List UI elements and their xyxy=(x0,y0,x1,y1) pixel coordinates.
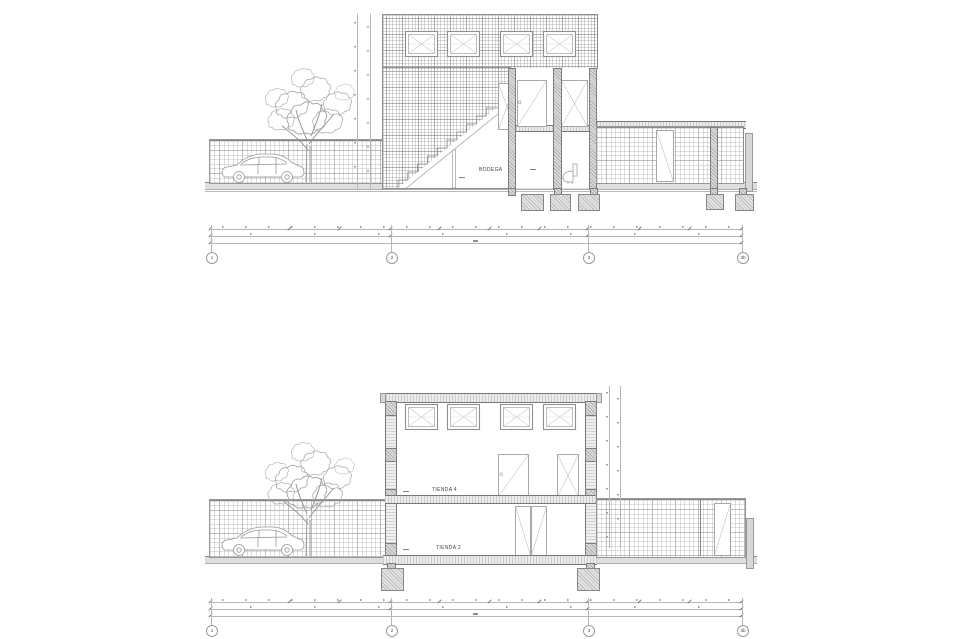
section-b: TIENDA 4 TIENDA 2 xyxy=(0,280,960,639)
level-marker-a1 xyxy=(459,174,465,178)
grid-leader-b1 xyxy=(211,598,212,625)
grid-leader-a4 xyxy=(742,225,743,252)
car-a xyxy=(220,147,306,184)
footing-a2 xyxy=(550,194,571,211)
grid-bubble-label: 3 xyxy=(588,256,591,261)
grid-bubble-label: 2 xyxy=(391,256,394,261)
column-a3 xyxy=(589,68,597,190)
grid-bubble-label: 1 xyxy=(211,629,214,634)
clerestory-window-a3 xyxy=(500,31,533,57)
floor-slab-mid-b xyxy=(385,495,595,504)
clerestory-window-b2 xyxy=(447,404,480,430)
end-wall-a xyxy=(745,133,753,192)
clerestory-window-a4 xyxy=(543,31,576,57)
dim-text-specks-a2 xyxy=(250,233,720,235)
grid-bubble-a-3: 3 xyxy=(583,252,595,264)
section-a: BODEGA xyxy=(0,0,960,280)
wall-block-r2 xyxy=(585,448,597,462)
door-a-upper-1 xyxy=(517,80,547,127)
grid-bubble-a-3b: 3b xyxy=(737,252,749,264)
vert-dim-b1 xyxy=(609,386,610,548)
level-marker-a2 xyxy=(530,166,536,170)
dim-row-a3 xyxy=(211,243,742,244)
clerestory-window-b4 xyxy=(543,404,576,430)
dim-text-specks-b1 xyxy=(222,599,734,601)
door-b-lower-double xyxy=(515,506,547,556)
grid-bubble-a-1: 1 xyxy=(206,252,218,264)
grid-leader-b4 xyxy=(742,598,743,625)
clerestory-window-b3 xyxy=(500,404,533,430)
dim-row-b2 xyxy=(211,609,742,610)
footing-b2 xyxy=(577,568,600,591)
dim-text-speck-a3 xyxy=(473,240,478,242)
vert-dim-a-specks2 xyxy=(367,26,369,176)
grid-leader-a2 xyxy=(391,225,392,252)
wall-block-r1 xyxy=(585,401,597,416)
door-b-upper-2 xyxy=(557,454,579,497)
room-label-tienda-4: TIENDA 4 xyxy=(432,488,457,493)
grid-leader-b3 xyxy=(588,598,589,625)
fence-door-b xyxy=(714,503,731,556)
footing-a5 xyxy=(735,194,754,211)
end-wall-b xyxy=(746,518,754,569)
grid-leader-b2 xyxy=(391,598,392,625)
wing-door xyxy=(656,130,674,182)
dim-row-a2 xyxy=(211,236,742,237)
level-marker-b2 xyxy=(403,546,409,550)
grid-bubble-b-2: 2 xyxy=(386,625,398,637)
vert-dim-a2 xyxy=(370,14,371,190)
fence-post-b xyxy=(700,499,701,556)
vert-dim-b-specks1 xyxy=(606,392,608,540)
grid-bubble-label: 3b xyxy=(740,629,745,634)
door-a-upper-2 xyxy=(561,80,588,127)
car-b xyxy=(220,520,306,557)
dim-text-specks-a1 xyxy=(222,226,734,228)
dim-row-b3 xyxy=(211,616,742,617)
vert-dim-b2 xyxy=(620,386,621,548)
vert-dim-a-specks1 xyxy=(354,22,356,178)
vert-dim-a1 xyxy=(357,14,358,190)
dim-text-specks-b2 xyxy=(250,606,720,608)
room-label-bodega: BODEGA xyxy=(479,168,503,173)
level-marker-b1 xyxy=(403,488,409,492)
wall-right-b xyxy=(585,401,597,555)
wing-end-line xyxy=(743,127,744,182)
floor-slab-bottom-b xyxy=(383,555,597,565)
footing-a3 xyxy=(578,194,600,211)
clerestory-window-a2 xyxy=(447,31,480,57)
wall-block-l2 xyxy=(385,448,397,462)
ground-subline-a xyxy=(205,191,757,192)
footing-a1 xyxy=(521,194,544,211)
dim-row-a1 xyxy=(211,229,742,230)
footing-b1 xyxy=(381,568,404,591)
stub-a1 xyxy=(508,188,516,196)
column-a1 xyxy=(508,68,516,190)
wall-block-l1 xyxy=(385,401,397,416)
footing-a4 xyxy=(706,194,724,210)
clerestory-window-a1 xyxy=(405,31,438,57)
grid-bubble-b-3: 3 xyxy=(583,625,595,637)
grid-bubble-label: 2 xyxy=(391,629,394,634)
room-label-tienda-2: TIENDA 2 xyxy=(436,546,461,551)
roof-slab-b xyxy=(380,393,600,403)
drawing-sheet: BODEGA xyxy=(0,0,960,639)
grid-bubble-label: 3b xyxy=(740,256,745,261)
door-b-upper-1 xyxy=(498,454,529,497)
clerestory-window-b1 xyxy=(405,404,438,430)
grid-leader-a3 xyxy=(588,225,589,252)
vert-dim-b-specks2 xyxy=(617,398,619,538)
wall-left-b xyxy=(385,401,397,555)
grid-bubble-label: 3 xyxy=(588,629,591,634)
toilet-fixture xyxy=(560,163,578,185)
grid-bubble-label: 1 xyxy=(211,256,214,261)
grid-leader-a1 xyxy=(211,225,212,252)
wing-column xyxy=(710,127,718,190)
grid-bubble-a-2: 2 xyxy=(386,252,398,264)
dim-row-b1 xyxy=(211,602,742,603)
grid-bubble-b-1: 1 xyxy=(206,625,218,637)
dim-text-speck-b3 xyxy=(473,613,478,615)
grid-bubble-b-3b: 3b xyxy=(737,625,749,637)
